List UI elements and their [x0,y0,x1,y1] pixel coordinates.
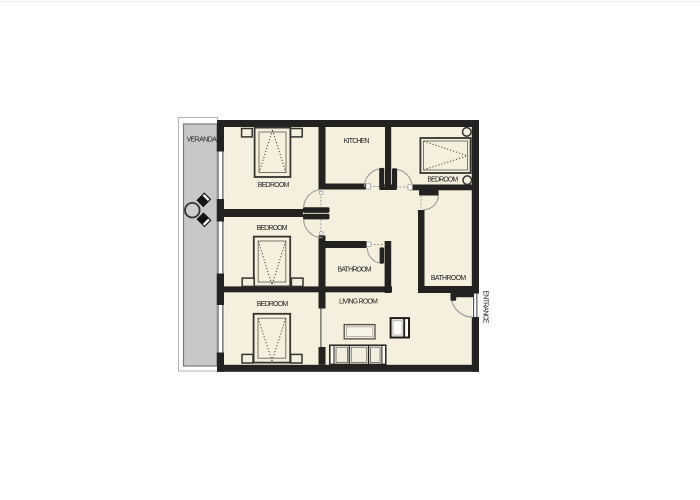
svg-text:BEDROOM: BEDROOM [427,177,458,184]
svg-text:BEDROOM: BEDROOM [256,225,287,232]
svg-text:BATHROOM: BATHROOM [338,267,372,274]
svg-text:BEDROOM: BEDROOM [257,301,289,308]
svg-text:BEDROOM: BEDROOM [258,182,290,189]
svg-text:LIVING ROOM: LIVING ROOM [339,299,378,306]
svg-text:BATHROOM: BATHROOM [431,275,466,282]
svg-text:KITCHEN: KITCHEN [344,138,370,145]
svg-text:ENTRANCE: ENTRANCE [481,290,488,324]
svg-text:VERANDA: VERANDA [187,137,218,144]
